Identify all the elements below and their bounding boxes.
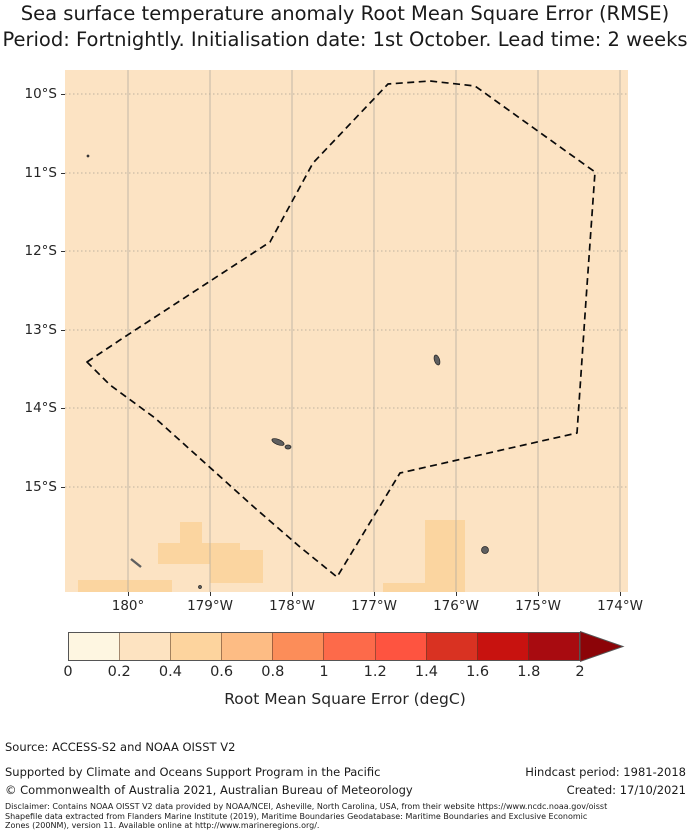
y-tick-label: 11°S [0,165,57,181]
x-axis-tick [620,592,621,596]
colorbar-cell [426,633,477,660]
x-tick-label: 179°W [187,598,233,614]
colorbar-tick-label: 2 [575,664,584,680]
x-axis-tick [374,592,375,596]
island [433,354,441,365]
map-plot-area [65,70,628,592]
disclaimer: Disclaimer: Contains NOAA OISST V2 data … [5,802,607,831]
y-axis-tick [61,330,65,331]
colorbar-cell [323,633,374,660]
disclaimer-line: Shapefile data extracted from Flanders M… [5,812,607,822]
colorbar-extend-arrow-icon [580,631,625,662]
x-axis-tick [456,592,457,596]
chart-title: Sea surface temperature anomaly Root Mea… [21,2,669,25]
chart-subtitle: Period: Fortnightly. Initialisation date… [2,28,687,51]
x-tick-label: 174°W [597,598,643,614]
x-tick-label: 180° [112,598,145,614]
colorbar-tick-label: 1 [319,664,328,680]
y-tick-label: 14°S [0,400,57,416]
y-tick-label: 12°S [0,243,57,259]
y-tick-label: 13°S [0,322,57,338]
colorbar-tick-label: 0 [63,664,72,680]
disclaimer-line: Zones (200NM), version 11. Available onl… [5,821,607,831]
island [199,586,202,589]
y-axis-tick [61,251,65,252]
colorbar-cell [69,633,119,660]
x-tick-label: 175°W [515,598,561,614]
x-axis-tick [292,592,293,596]
colorbar [68,632,580,661]
x-tick-label: 178°W [269,598,315,614]
island [285,445,291,449]
colorbar-tick-label: 0.8 [261,664,284,680]
island [131,559,141,567]
disclaimer-line: Disclaimer: Contains NOAA OISST V2 data … [5,802,607,812]
map-canvas [65,70,628,592]
rmse-patch [383,583,425,592]
colorbar-tick-label: 0.6 [210,664,233,680]
colorbar-tick-label: 1.2 [364,664,387,680]
y-axis-tick [61,94,65,95]
x-axis-tick [210,592,211,596]
island [271,437,285,447]
y-axis-tick [61,408,65,409]
figure: Sea surface temperature anomaly Root Mea… [0,0,690,839]
hindcast-period-text: Hindcast period: 1981-2018 [525,765,686,779]
y-axis-tick [61,487,65,488]
colorbar-cell [221,633,272,660]
colorbar-label: Root Mean Square Error (degC) [224,690,466,708]
y-tick-label: 15°S [0,479,57,495]
x-tick-label: 176°W [433,598,479,614]
x-axis-tick [128,592,129,596]
rmse-patch [425,520,465,592]
y-tick-label: 10°S [0,86,57,102]
colorbar-tick-label: 0.4 [159,664,182,680]
island [482,547,489,554]
supported-by-text: Supported by Climate and Oceans Support … [5,765,380,779]
rmse-patch [180,522,202,543]
x-tick-label: 177°W [351,598,397,614]
source-text: Source: ACCESS-S2 and NOAA OISST V2 [5,740,235,754]
colorbar-cell [528,633,579,660]
colorbar-tick-label: 1.4 [415,664,438,680]
colorbar-cell [119,633,170,660]
maritime-boundary [87,81,595,577]
colorbar-tick-label: 1.8 [517,664,540,680]
colorbar-cell [272,633,323,660]
colorbar-tick-label: 1.6 [466,664,489,680]
created-date-text: Created: 17/10/2021 [567,783,686,797]
colorbar-tick-label: 0.2 [108,664,131,680]
colorbar-cell [170,633,221,660]
copyright-text: © Commonwealth of Australia 2021, Austra… [5,783,413,797]
x-axis-tick [538,592,539,596]
island [87,155,89,157]
colorbar-cell [477,633,528,660]
rmse-patch [78,580,172,592]
rmse-patch [210,550,263,583]
colorbar-cell [375,633,426,660]
colorbar-arrow-shape [580,632,623,662]
y-axis-tick [61,173,65,174]
